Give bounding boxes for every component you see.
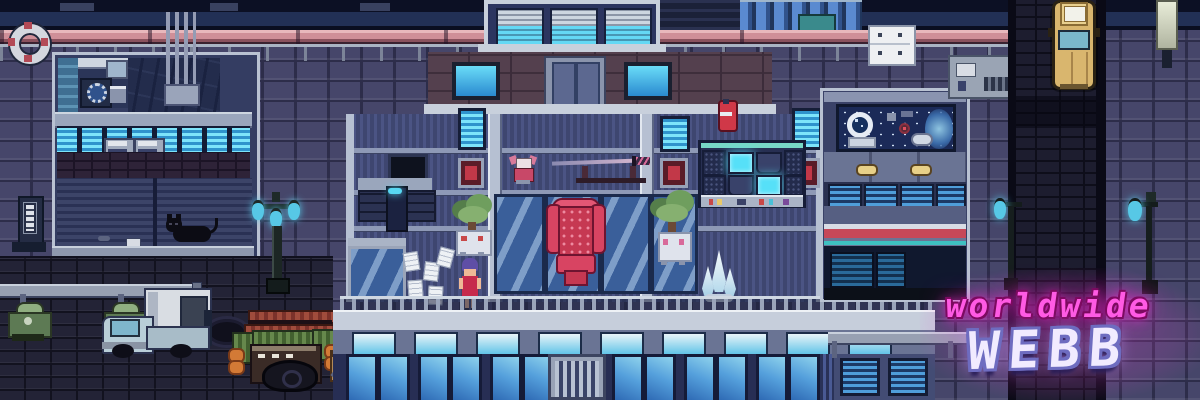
- right-wing-window: [840, 358, 880, 396]
- ground-window: [490, 354, 522, 400]
- crown-window: [496, 8, 544, 48]
- shutter-handle: [98, 236, 110, 241]
- dark-pipes: [660, 0, 740, 30]
- katana-display[interactable]: [548, 150, 652, 186]
- clerestory-window: [662, 332, 706, 356]
- light-pillar: [1156, 0, 1178, 50]
- worldwide-webb-street-scene: worldwide WEBB: [0, 0, 1200, 400]
- second-story-window: [624, 62, 672, 100]
- second-story-window: [452, 62, 500, 100]
- astronaut-poster: [836, 104, 956, 152]
- ground-window: [684, 354, 716, 400]
- walkway-panel: [60, 3, 94, 11]
- pickup-truck[interactable]: [100, 286, 214, 360]
- clerestory-window: [476, 332, 520, 356]
- ground-window: [788, 354, 820, 400]
- entrance-door[interactable]: [548, 354, 606, 400]
- astronaut-window: [828, 184, 862, 208]
- porthole-machine[interactable]: [80, 78, 112, 108]
- black-cat[interactable]: [166, 214, 220, 248]
- ground-window: [450, 354, 482, 400]
- clerestory-window: [724, 332, 768, 356]
- room-window: [106, 60, 128, 79]
- taxi-car[interactable]: [1046, 0, 1100, 96]
- crown-window: [604, 8, 652, 48]
- astronaut-window: [900, 184, 934, 208]
- astronaut-window: [936, 184, 966, 208]
- life-ring: [8, 22, 52, 66]
- pill-handle: [856, 164, 878, 176]
- astronaut-window: [864, 184, 898, 208]
- rooftop-cabinet: [868, 25, 916, 66]
- astronaut-building-facade: [824, 152, 966, 182]
- glass-cabinet: [348, 238, 406, 246]
- ground-window: [644, 354, 676, 400]
- shelf-rack: [698, 140, 806, 208]
- clerestory-window: [414, 332, 458, 356]
- bonsai-tree: [648, 190, 698, 268]
- scattered-paper: [403, 251, 421, 272]
- glass-cabinet-front: [348, 246, 406, 300]
- clerestory-window: [786, 332, 830, 356]
- clerestory-window: [352, 332, 396, 356]
- street-lamp: [252, 192, 300, 294]
- pill-handle: [910, 164, 932, 176]
- stripe-column: [820, 354, 834, 400]
- walkway-panel: [360, 3, 390, 11]
- logo-webb: WEBB: [966, 318, 1131, 382]
- street-sign-post: [12, 196, 46, 252]
- astronaut-helmet: [847, 112, 873, 138]
- ground-window: [418, 354, 450, 400]
- crystal-sculpture: [702, 250, 736, 302]
- ground-window: [612, 354, 644, 400]
- bonsai-tree: [448, 194, 496, 256]
- mid-band: [824, 206, 966, 224]
- clerestory-window: [538, 332, 582, 356]
- interior-window: [458, 108, 486, 150]
- crown-window: [550, 8, 598, 48]
- stripe-band: [824, 224, 966, 246]
- gas-valve-1: [6, 302, 50, 342]
- room-console: [110, 86, 126, 103]
- road-shadow-band: [1016, 96, 1096, 128]
- dark-brick-band: [57, 152, 250, 178]
- framed-picture: [458, 158, 484, 188]
- framed-picture: [660, 158, 688, 188]
- desk-computer[interactable]: [354, 152, 434, 230]
- samurai-figurine: [510, 156, 536, 186]
- crane-box: [164, 84, 200, 106]
- clerestory-window: [600, 332, 644, 356]
- fire-extinguisher[interactable]: [718, 100, 738, 132]
- interior-window: [660, 116, 690, 152]
- ground-window: [716, 354, 748, 400]
- astronaut-building-top-band: [824, 92, 966, 102]
- ground-window: [378, 354, 410, 400]
- red-armchair[interactable]: [544, 196, 604, 284]
- handrail-post: [832, 341, 837, 358]
- walkway-panel: [210, 3, 238, 11]
- ground-window: [346, 354, 378, 400]
- light-pillar-base: [1162, 50, 1172, 68]
- rooftop-machine: [948, 55, 1016, 99]
- ground-window: [756, 354, 788, 400]
